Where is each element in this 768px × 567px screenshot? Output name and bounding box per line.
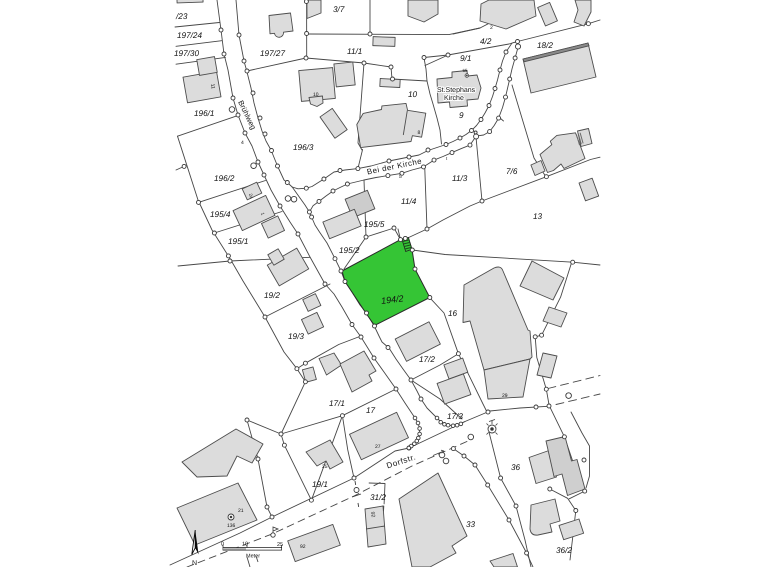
svg-text:17/3: 17/3 bbox=[447, 412, 463, 421]
svg-text:9/1: 9/1 bbox=[460, 54, 471, 63]
svg-text:8: 8 bbox=[418, 130, 421, 136]
svg-text:N: N bbox=[192, 560, 197, 567]
svg-text:7/6: 7/6 bbox=[506, 167, 518, 176]
svg-text:11/3: 11/3 bbox=[452, 174, 468, 183]
svg-text:196/3: 196/3 bbox=[293, 143, 314, 152]
svg-text:0: 0 bbox=[221, 542, 224, 548]
svg-text:195/4: 195/4 bbox=[210, 210, 231, 219]
svg-text:29: 29 bbox=[502, 393, 508, 399]
svg-text:2: 2 bbox=[490, 25, 493, 31]
svg-text:17/1: 17/1 bbox=[329, 399, 345, 408]
svg-text:10: 10 bbox=[408, 90, 418, 99]
svg-text:17/2: 17/2 bbox=[419, 355, 435, 364]
svg-text:19/3: 19/3 bbox=[288, 332, 304, 341]
svg-text:4: 4 bbox=[241, 140, 244, 146]
svg-text:36/2: 36/2 bbox=[556, 546, 572, 555]
svg-text:195/2: 195/2 bbox=[339, 246, 360, 255]
svg-text:92: 92 bbox=[300, 544, 306, 550]
svg-text:195/5: 195/5 bbox=[364, 220, 385, 229]
svg-text:197/30: 197/30 bbox=[174, 49, 199, 58]
svg-text:18/2: 18/2 bbox=[537, 41, 553, 50]
svg-text:25: 25 bbox=[322, 464, 328, 470]
svg-text:136: 136 bbox=[227, 523, 236, 529]
svg-text:Meter: Meter bbox=[246, 554, 260, 560]
svg-text:197/24: 197/24 bbox=[177, 31, 202, 40]
svg-text:65: 65 bbox=[463, 68, 469, 73]
svg-text:5: 5 bbox=[399, 174, 402, 180]
svg-text:17: 17 bbox=[366, 406, 376, 415]
svg-text:33: 33 bbox=[466, 520, 476, 529]
svg-text:196/2: 196/2 bbox=[214, 174, 235, 183]
svg-text:196/1: 196/1 bbox=[194, 109, 215, 118]
svg-text:St.Stephans: St.Stephans bbox=[437, 86, 476, 94]
svg-text:25: 25 bbox=[277, 542, 283, 548]
svg-text:31/2: 31/2 bbox=[370, 493, 386, 502]
svg-text:11/4: 11/4 bbox=[401, 197, 417, 206]
svg-text:11/1: 11/1 bbox=[347, 47, 362, 56]
svg-text:10: 10 bbox=[313, 92, 319, 98]
svg-text:/23: /23 bbox=[175, 12, 188, 21]
svg-text:3/7: 3/7 bbox=[333, 5, 345, 14]
svg-text:4/2: 4/2 bbox=[480, 37, 492, 46]
svg-text:19/1: 19/1 bbox=[312, 480, 328, 489]
svg-text:36: 36 bbox=[511, 463, 521, 472]
svg-text:197/27: 197/27 bbox=[260, 49, 285, 58]
svg-text:27: 27 bbox=[375, 444, 381, 450]
svg-text:19/2: 19/2 bbox=[264, 291, 280, 300]
svg-text:195/1: 195/1 bbox=[228, 237, 249, 246]
svg-text:16: 16 bbox=[448, 309, 458, 318]
svg-text:21: 21 bbox=[238, 508, 244, 514]
svg-text:9: 9 bbox=[459, 111, 464, 120]
svg-text:13: 13 bbox=[533, 212, 543, 221]
svg-text:10: 10 bbox=[242, 542, 248, 548]
svg-text:Kirche: Kirche bbox=[444, 94, 464, 102]
